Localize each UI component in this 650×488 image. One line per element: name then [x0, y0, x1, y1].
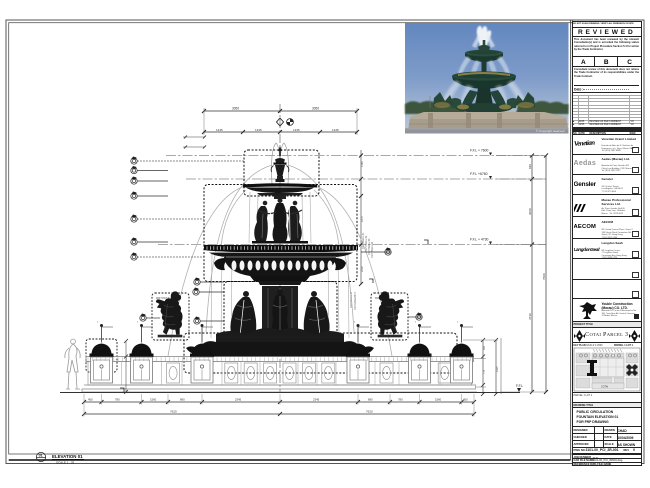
svg-text:1345: 1345 [293, 128, 300, 132]
svg-text:2030: 2030 [360, 266, 364, 272]
svg-text:ELEVATION 01: ELEVATION 01 [52, 454, 83, 459]
svg-text:7620: 7620 [170, 410, 177, 414]
svg-text:F.F.L: F.F.L [516, 384, 523, 388]
svg-text:01: 01 [39, 454, 43, 458]
svg-text:1870: 1870 [360, 216, 364, 222]
svg-text:3050: 3050 [312, 107, 319, 111]
svg-text:FRP PANEL 04: FRP PANEL 04 [371, 241, 374, 258]
svg-text:770: 770 [483, 369, 486, 374]
svg-text:f: f [137, 321, 138, 324]
svg-text:F.F.L + 4730: F.F.L + 4730 [470, 238, 489, 242]
svg-text:840: 840 [528, 164, 532, 169]
svg-text:450: 450 [463, 398, 468, 402]
svg-text:890: 890 [368, 398, 373, 402]
svg-text:7600: 7600 [542, 273, 546, 280]
svg-text:490: 490 [483, 345, 486, 350]
svg-text:© Copyright reserved: © Copyright reserved [536, 129, 565, 133]
svg-text:F.F.L + 7600: F.F.L + 7600 [470, 149, 489, 153]
svg-text:1345: 1345 [255, 128, 262, 132]
svg-text:COTAI: COTAI [601, 386, 608, 389]
svg-text:4730: 4730 [528, 313, 532, 320]
svg-text:3060: 3060 [528, 208, 532, 215]
svg-text:2345: 2345 [235, 398, 242, 402]
svg-text:1560: 1560 [435, 398, 442, 402]
svg-text:780: 780 [398, 398, 403, 402]
svg-text:450: 450 [88, 398, 93, 402]
svg-text:SCALE 1 : 25: SCALE 1 : 25 [56, 460, 75, 464]
svg-text:2345: 2345 [313, 398, 320, 402]
svg-text:f: f [457, 321, 458, 324]
svg-text:3050: 3050 [232, 107, 239, 111]
svg-text:1345: 1345 [216, 128, 223, 132]
svg-text:f: f [354, 321, 355, 324]
svg-text:780: 780 [115, 398, 120, 402]
svg-text:1360: 1360 [360, 161, 364, 167]
svg-text:1345: 1345 [332, 128, 339, 132]
svg-text:f: f [97, 321, 98, 324]
svg-text:1560: 1560 [150, 398, 157, 402]
svg-text:1425: 1425 [496, 366, 499, 372]
svg-text:F.F.L +6760: F.F.L +6760 [470, 172, 488, 176]
svg-text:890: 890 [180, 398, 185, 402]
svg-text:FRP ASSEMBLY: FRP ASSEMBLY [354, 292, 357, 310]
svg-text:7620: 7620 [366, 410, 373, 414]
svg-text:f: f [415, 321, 416, 324]
